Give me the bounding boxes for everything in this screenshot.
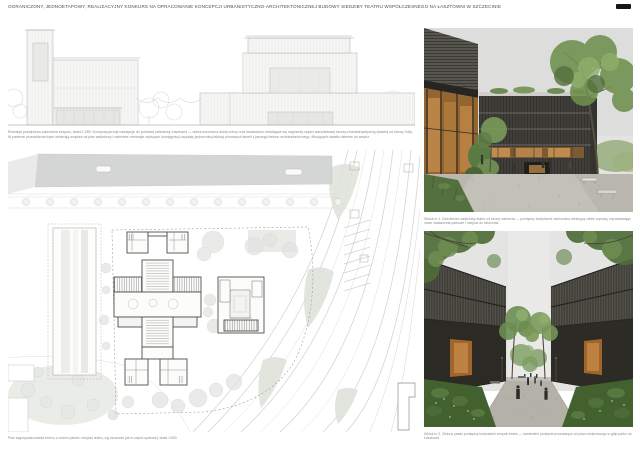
- render-courtyard-view: [424, 28, 633, 212]
- plan-secondary-building: [218, 277, 264, 333]
- site-plan-drawing: [8, 150, 420, 432]
- elevation-left-building: [25, 30, 237, 125]
- plan-green-medians: [258, 164, 360, 424]
- competition-board: OGRANICZONY, JEDNOETAPOWY, REALIZACYJNY …: [0, 0, 640, 452]
- plan-quay-trees: [23, 199, 342, 206]
- render-passage-view: [424, 231, 633, 427]
- plan-theater-building: [114, 232, 201, 385]
- elevation-drawing-panel: [8, 22, 415, 127]
- elevation-description: Elewacja południowo-zachodnia zespołu, s…: [8, 130, 415, 140]
- plan-quay-lines: [8, 194, 348, 208]
- page-number-badge: [616, 4, 631, 9]
- render-1-caption: Widok nr 1. Dziedziniec wejściowy teatru…: [424, 217, 633, 226]
- plan-quay-wedge: [8, 154, 38, 194]
- render-2-caption: Widok nr 2. Zielony pasaż pomiędzy budyn…: [424, 432, 633, 441]
- elevation-right-building: [230, 36, 415, 125]
- site-plan-panel: [8, 150, 420, 432]
- page-title: OGRANICZONY, JEDNOETAPOWY, REALIZACYJNY …: [8, 4, 598, 9]
- render-2-panel: [424, 231, 633, 427]
- elevation-drawing: [8, 22, 415, 127]
- plan-long-building: [48, 224, 101, 379]
- render-1-panel: [424, 28, 633, 212]
- elevation-description-line2: W parterze przeszklenia foyer otwierają …: [8, 135, 415, 140]
- site-plan-caption: Plan zagospodarowania terenu z rzutem pa…: [8, 436, 308, 440]
